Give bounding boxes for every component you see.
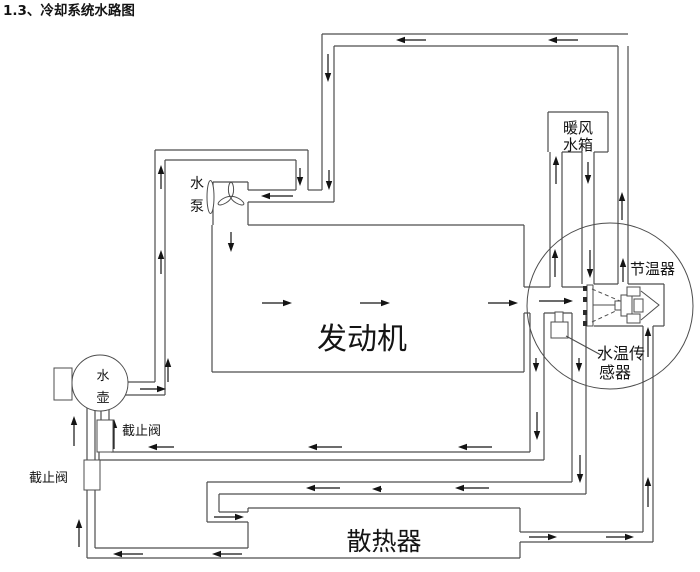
heater-core-label-1: 暖风 [563, 119, 593, 137]
water-temp-sensor-label-1: 水温传 [597, 344, 645, 363]
water-pump-label-1: 水 [190, 176, 204, 192]
page-title: 1.3、冷却系统水路图 [3, 2, 135, 19]
pipe-network [87, 34, 664, 558]
shutoff-valve-lower-symbol [84, 460, 100, 490]
thermostat-valve-body [615, 287, 643, 323]
water-bottle-label-2: 壶 [96, 391, 109, 406]
thermostat-seat-plate [587, 285, 593, 326]
thermostat-label: 节温器 [630, 260, 675, 278]
sensor-leader-line [566, 336, 601, 355]
water-bottle-symbol [54, 355, 128, 411]
thermostat-symbol [583, 285, 659, 326]
shutoff-valve-lower-label: 截止阀 [29, 471, 68, 486]
cooling-system-diagram-page: 1.3、冷却系统水路图 水 泵 发动机 暖风 水箱 节温器 水温传 感器 水 壶… [0, 0, 700, 572]
water-temp-sensor-label-2: 感器 [599, 363, 631, 382]
pump-pulley-icon [207, 181, 214, 214]
sensor-stem [555, 312, 563, 322]
shutoff-valve-upper-symbol [97, 420, 113, 452]
radiator-label: 散热器 [346, 527, 421, 556]
flow-arrows [71, 37, 651, 557]
water-pump-label-2: 泵 [190, 199, 204, 215]
cooling-water-circuit-diagram: 1.3、冷却系统水路图 水 泵 发动机 暖风 水箱 节温器 水温传 感器 水 壶… [0, 0, 700, 572]
sensor-body [551, 322, 568, 338]
engine-label: 发动机 [317, 322, 407, 357]
pump-fan-icon [217, 182, 245, 206]
shutoff-valve-upper-label: 截止阀 [122, 424, 161, 439]
bottle-cap-tab [54, 368, 72, 400]
water-pump-symbol [207, 181, 245, 214]
thermostat-cone-outline [641, 291, 659, 320]
heater-core-label-2: 水箱 [563, 136, 593, 154]
water-bottle-label-1: 水 [96, 369, 109, 384]
